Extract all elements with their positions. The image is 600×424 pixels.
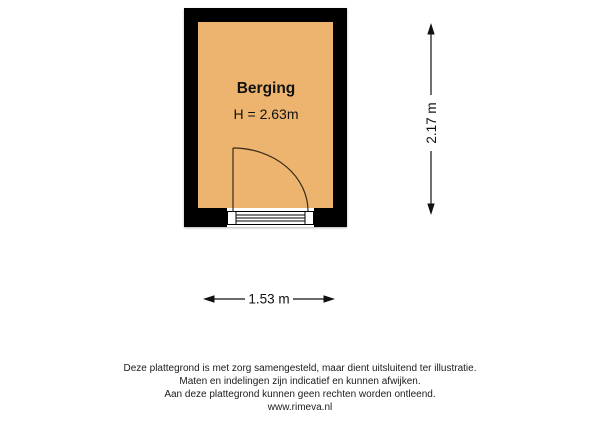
disclaimer: Deze plattegrond is met zorg samengestel… — [0, 362, 600, 414]
room-berging: Berging H = 2.63m — [184, 8, 347, 227]
height-dimension-label: 2.17 m — [424, 102, 439, 143]
arrow-right-icon — [324, 295, 336, 302]
width-dimension: 1.53 m — [203, 292, 335, 307]
room-name-label: Berging — [237, 80, 296, 97]
disclaimer-line-1: Deze plattegrond is met zorg samengestel… — [0, 362, 600, 375]
floor-plan-page: Berging H = 2.63m 2.17 m 1.53 m Deze pla… — [0, 0, 600, 424]
room-ceiling-height-label: H = 2.63m — [234, 106, 299, 122]
height-dimension: 2.17 m — [424, 23, 439, 215]
width-dimension-label: 1.53 m — [248, 292, 289, 307]
door-threshold — [228, 212, 314, 225]
arrow-down-icon — [427, 204, 434, 216]
arrow-left-icon — [203, 295, 215, 302]
arrow-up-icon — [427, 23, 434, 35]
floor-plan-canvas: Berging H = 2.63m 2.17 m 1.53 m — [0, 0, 600, 424]
disclaimer-line-3: Aan deze plattegrond kunnen geen rechten… — [0, 388, 600, 401]
disclaimer-line-2: Maten en indelingen zijn indicatief en k… — [0, 375, 600, 388]
website-label: www.rimeva.nl — [0, 401, 600, 414]
